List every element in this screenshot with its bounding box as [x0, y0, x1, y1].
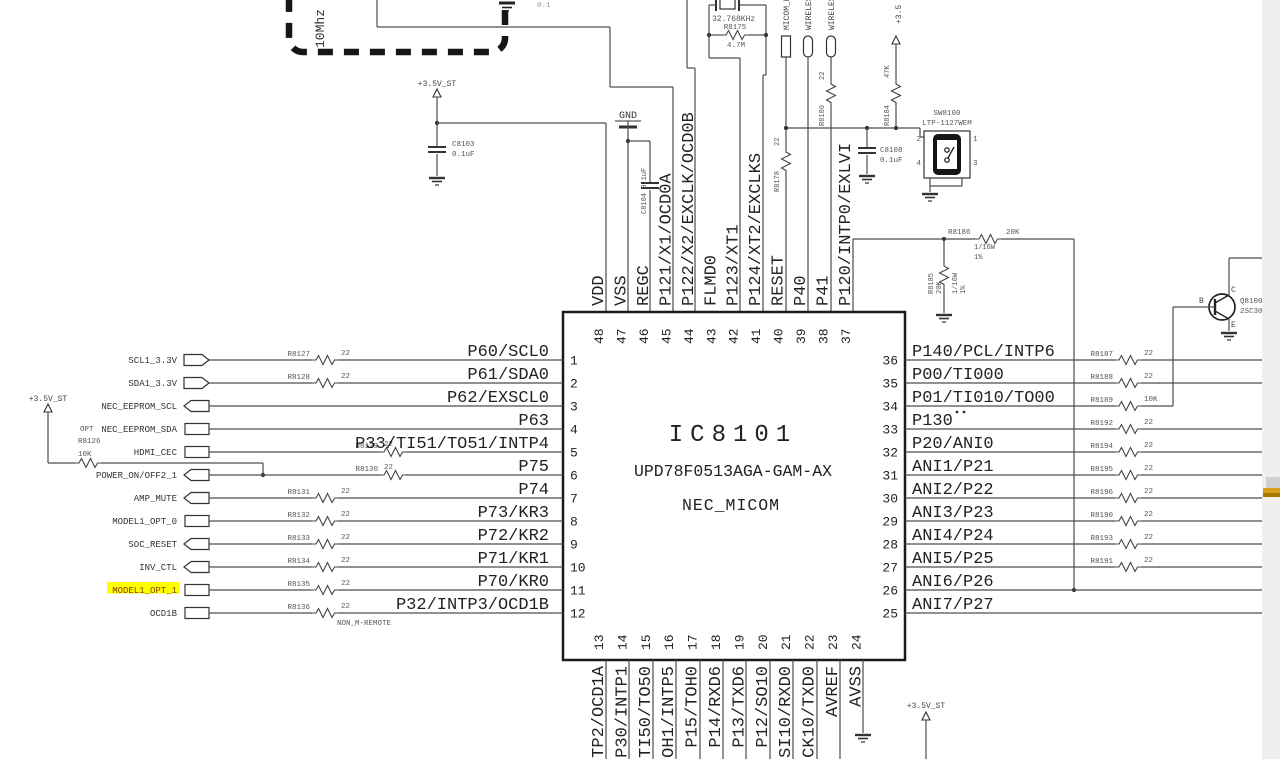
pin-name: ANI6/P26: [912, 573, 994, 592]
transistor-pin-label: B: [1199, 297, 1204, 306]
pin-number: 26: [882, 584, 898, 599]
net-label: NON_M-REMOTE: [337, 620, 392, 628]
pin-number: 40: [772, 328, 787, 344]
switch-icon: [945, 158, 949, 162]
component-ref: Q8100: [1240, 298, 1263, 306]
pin-number: 11: [570, 584, 586, 599]
component-value: 4.7M: [727, 42, 746, 50]
component-ref: C8103: [452, 141, 475, 149]
component-ref: R8130: [355, 466, 378, 474]
net-label: NEC_EEPROM_SDA: [101, 425, 177, 435]
pin-number: 27: [882, 561, 898, 576]
net-label: MODEL1_OPT_0: [112, 517, 177, 527]
component-value: 22: [1144, 465, 1153, 473]
component-note: OPT: [80, 426, 94, 434]
pin-number: 41: [749, 328, 764, 344]
pin-name: P60/SCL0: [467, 343, 549, 362]
pin-number: 48: [592, 328, 607, 344]
net-label: OCD1B: [150, 609, 178, 619]
component-ref: R8126: [78, 438, 101, 446]
component-ref: R8184: [884, 105, 892, 126]
pin-name: ANI5/P25: [912, 550, 994, 569]
switch-pin-label: 4: [916, 160, 921, 168]
net-label: AMP_MUTE: [134, 494, 177, 504]
junction-dot: [764, 33, 768, 37]
component-ref: R8189: [1090, 397, 1113, 405]
component-ref: R8180: [819, 105, 827, 126]
junction-dot: [707, 33, 711, 37]
pin-number: 18: [709, 634, 724, 650]
schematic-canvas: 10Mhz0.1+3.5V_STC81030.1uFGNDC8104 0.1uF…: [0, 0, 1280, 759]
pin-name: P121/X1/OCD0A: [657, 173, 676, 306]
component-ref: R8186: [948, 229, 971, 237]
schematic-drawing: 10Mhz0.1+3.5V_STC81030.1uFGNDC8104 0.1uF…: [0, 0, 1280, 759]
component-value: 22: [1144, 419, 1153, 427]
pin-number: 37: [839, 328, 854, 344]
component-ref: R8178: [774, 171, 782, 192]
component-value: 22: [341, 488, 350, 496]
pin-name: P41: [815, 275, 834, 306]
osc-freq-label: 10Mhz: [313, 9, 328, 48]
component-ref: R8192: [1090, 420, 1113, 428]
component-value: 22: [774, 138, 782, 146]
net-flag: [804, 36, 813, 57]
net-label: MICOM_R: [783, 0, 792, 30]
component-value: 22: [384, 464, 393, 472]
pin-number: 22: [803, 634, 818, 650]
pin-number: 47: [614, 328, 629, 344]
component-ref: R8191: [1090, 558, 1113, 566]
net-flag: [185, 516, 209, 527]
pin-name: P140/PCL/INTP6: [912, 343, 1055, 362]
pin-name: ANI4/P24: [912, 527, 994, 546]
pin-number: 16: [662, 634, 677, 650]
component-ref: R8196: [1090, 489, 1113, 497]
pin-name: P130: [912, 412, 953, 431]
pin-number: 38: [817, 328, 832, 344]
component-value: 22: [819, 72, 827, 80]
component-part: LTP-1127WEM: [922, 120, 972, 128]
component-value: 22: [1144, 557, 1153, 565]
pin-number: 10: [570, 561, 586, 576]
pin-number: 9: [570, 538, 578, 553]
component-rating: 1%: [960, 285, 968, 294]
edge-artifact: [1266, 477, 1280, 488]
net-label: POWER_ON/OFF2_1: [96, 471, 177, 481]
pin-number: 32: [882, 446, 898, 461]
pin-name: ANI3/P23: [912, 504, 994, 523]
pin-number: 42: [727, 328, 742, 344]
component-value: 22: [1144, 350, 1153, 358]
ic-name: NEC_MICOM: [682, 496, 780, 515]
pin-number: 14: [615, 634, 630, 650]
pin-number: 4: [570, 423, 578, 438]
pin-number: 35: [882, 377, 898, 392]
stray-dot: [963, 411, 966, 414]
pin-name: P124/XT2/EXCLKS: [747, 153, 766, 306]
component-ref: R8185: [928, 273, 936, 294]
ic-ref: IC8101: [669, 422, 797, 449]
pin-name: ANI7/P27: [912, 596, 994, 615]
pin-number: 17: [686, 634, 701, 650]
net-flag: [185, 424, 209, 435]
net-label: MODEL1_OPT_1: [112, 586, 177, 596]
pin-name: P61/SDA0: [467, 366, 549, 385]
pin-number: 24: [849, 634, 864, 650]
pin-number: 33: [882, 423, 898, 438]
power-label: +3.5V_ST: [907, 702, 946, 711]
component-ref: R8175: [724, 24, 747, 32]
switch-icon: [945, 148, 949, 152]
net-label: SCL1_3.3V: [128, 356, 177, 366]
component-ref: R8194: [1090, 443, 1113, 451]
transistor-pin-label: E: [1231, 321, 1236, 330]
transistor-pin-label: C: [1231, 286, 1236, 295]
net-flag: [827, 36, 836, 57]
component-ref: R8188: [1090, 374, 1113, 382]
pin-number: 2: [570, 377, 578, 392]
pin-name: P20/ANI0: [912, 435, 994, 454]
pin-name: P70/KR0: [478, 573, 549, 592]
ic-part: UPD78F0513AGA-GAM-AX: [634, 462, 832, 481]
edge-strip: [1262, 0, 1280, 759]
pin-number: 13: [592, 634, 607, 650]
junction-dot: [894, 126, 898, 130]
pin-number: 19: [732, 634, 747, 650]
net-label: HDMI_CEC: [134, 448, 178, 458]
component-value: 22: [1144, 534, 1153, 542]
gnd-label: GND: [619, 111, 637, 122]
pin-number: 8: [570, 515, 578, 530]
net-label: SOC_RESET: [128, 540, 177, 550]
net-flag: [185, 447, 209, 458]
component-value: 22: [1144, 511, 1153, 519]
pin-name: FLMD0: [702, 255, 721, 306]
component-ref: R8195: [1090, 466, 1113, 474]
pin-number: 3: [570, 400, 578, 415]
component-ref: R8132: [287, 512, 310, 520]
component-ref: R8133: [287, 535, 310, 543]
component-ref: R8190: [1090, 512, 1113, 520]
component-value: 10K: [1144, 396, 1158, 404]
component-value: 20K: [936, 281, 944, 294]
pin-number: 15: [639, 634, 654, 650]
junction-dot: [784, 126, 788, 130]
pin-name: P120/INTP0/EXLVI: [837, 143, 856, 306]
component-part: 2SC30: [1240, 308, 1263, 316]
pin-name: RESET: [770, 255, 789, 306]
net-label: SDA1_3.3V: [128, 379, 177, 389]
component-value: 22: [341, 557, 350, 565]
component-value: 10K: [78, 451, 92, 459]
pin-number: 5: [570, 446, 578, 461]
component-rating: 1/16W: [974, 244, 996, 252]
stray-dot: [956, 411, 959, 414]
pin-number: 43: [704, 328, 719, 344]
pin-name: ANI1/P21: [912, 458, 994, 477]
power-label: +3.5: [895, 5, 904, 24]
component-ref: R8193: [1090, 535, 1113, 543]
pin-name: P75: [518, 458, 549, 477]
component-value: 20K: [1006, 229, 1020, 237]
pin-name: P63: [518, 412, 549, 431]
pin-number: 31: [882, 469, 898, 484]
component-value: 22: [341, 373, 350, 381]
pin-name: ANI2/P22: [912, 481, 994, 500]
crystal-icon: [720, 0, 735, 9]
pin-number: 39: [794, 328, 809, 344]
pin-name: P00/TI000: [912, 366, 1004, 385]
pin-number: 34: [882, 400, 898, 415]
component-value: 22: [341, 350, 350, 358]
pin-name: VSS: [612, 275, 631, 306]
pin-name: P74: [518, 481, 549, 500]
pin-number: 28: [882, 538, 898, 553]
crystal-freq-label: 32.768KHz: [712, 15, 755, 24]
pin-name: P71/KR1: [478, 550, 549, 569]
net-flag: [185, 585, 209, 596]
pin-number: 21: [779, 634, 794, 650]
component-ref: R8131: [287, 489, 310, 497]
pin-name: P122/X2/EXCLK/OCD0B: [680, 112, 699, 306]
edge-artifact: [1263, 488, 1280, 493]
component-ref: R8136: [287, 604, 310, 612]
component-ref: C8108: [880, 147, 903, 155]
pin-name: P123/XT1: [725, 224, 744, 306]
pin-name: P33/TI51/TO51/INTP4: [355, 435, 549, 454]
component-ref: C8104 0.1uF: [641, 168, 649, 214]
net-label: INV_CTL: [139, 563, 177, 573]
pin-name: P32/INTP3/OCD1B: [396, 596, 549, 615]
component-value: 22: [1144, 488, 1153, 496]
pin-number: 25: [882, 607, 898, 622]
component-value: 22: [341, 511, 350, 519]
pin-number: 29: [882, 515, 898, 530]
edge-artifact: [1263, 493, 1280, 497]
net-flag: [782, 36, 791, 57]
component-value: 0.1uF: [452, 151, 475, 159]
pin-number: 12: [570, 607, 586, 622]
component-rating: 1/16W: [952, 272, 960, 294]
pin-number: 30: [882, 492, 898, 507]
switch-pin-label: 2: [916, 136, 921, 144]
pin-name: P40: [792, 275, 811, 306]
pin-number: 23: [826, 634, 841, 650]
net-label: NEC_EEPROM_SCL: [101, 402, 177, 412]
component-ref: R8187: [1090, 351, 1113, 359]
component-value: 22: [341, 603, 350, 611]
pin-number: 45: [659, 328, 674, 344]
component-value: 22: [341, 534, 350, 542]
switch-icon: [937, 140, 957, 169]
pin-name: P01/TI010/TO00: [912, 389, 1055, 408]
component-rating: 1%: [974, 254, 983, 262]
component-ref: R8135: [287, 581, 310, 589]
component-value: 47K: [884, 65, 892, 78]
pin-number: 7: [570, 492, 578, 507]
component-ref: R8127: [287, 351, 310, 359]
pin-number: 6: [570, 469, 578, 484]
component-ref: R8134: [287, 558, 310, 566]
component-value: 22: [1144, 442, 1153, 450]
pin-name: VDD: [590, 275, 609, 306]
power-label: +3.5V_ST: [418, 80, 457, 89]
component-value: 22: [1144, 373, 1153, 381]
net-label: WIRELES: [828, 0, 837, 30]
switch-pin-label: 1: [973, 136, 978, 144]
component-value: 0.1uF: [880, 157, 903, 165]
component-ref: SW8100: [933, 110, 961, 118]
net-label: WIRELES: [805, 0, 814, 30]
pin-name: REGC: [635, 265, 654, 306]
pin-number: 46: [637, 328, 652, 344]
pin-name: P72/KR2: [478, 527, 549, 546]
pin-number: 44: [682, 328, 697, 344]
power-label: +3.5V_ST: [29, 395, 68, 404]
switch-pin-label: 3: [973, 160, 978, 168]
component-value: 22: [341, 580, 350, 588]
pin-name: P73/KR3: [478, 504, 549, 523]
pin-number: 36: [882, 354, 898, 369]
component-ref: R8128: [287, 374, 310, 382]
net-flag: [185, 608, 209, 619]
cap-value-fragment: 0.1: [537, 2, 551, 10]
pin-number: 1: [570, 354, 578, 369]
pin-number: 20: [756, 634, 771, 650]
pin-name: P62/EXSCL0: [447, 389, 549, 408]
